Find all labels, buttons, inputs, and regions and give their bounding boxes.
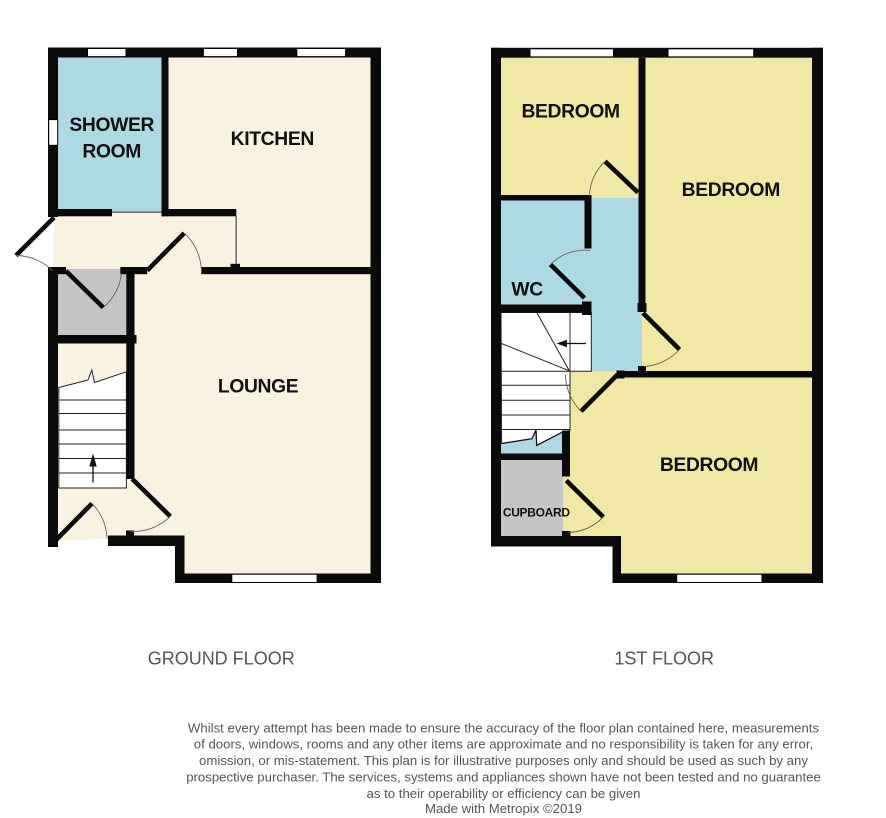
svg-text:omission, or mis-statement. Th: omission, or mis-statement. This plan is… [199, 753, 808, 768]
svg-text:SHOWER: SHOWER [69, 115, 154, 136]
svg-text:CUPBOARD: CUPBOARD [503, 505, 571, 519]
svg-text:GROUND FLOOR: GROUND FLOOR [148, 648, 295, 668]
svg-text:BEDROOM: BEDROOM [521, 102, 619, 123]
svg-text:1ST FLOOR: 1ST FLOOR [614, 648, 714, 668]
svg-text:of doors, windows, rooms and a: of doors, windows, rooms and any other i… [194, 737, 813, 752]
svg-text:LOUNGE: LOUNGE [218, 377, 299, 398]
svg-text:KITCHEN: KITCHEN [231, 129, 314, 150]
svg-text:Made with Metropix ©2019: Made with Metropix ©2019 [425, 801, 582, 816]
svg-text:as to their operability or eff: as to their operability or efficiency ca… [367, 786, 641, 801]
svg-text:BEDROOM: BEDROOM [682, 180, 780, 201]
svg-text:ROOM: ROOM [82, 142, 141, 163]
svg-text:BEDROOM: BEDROOM [660, 455, 758, 476]
svg-text:prospective purchaser. The ser: prospective purchaser. The services, sys… [186, 770, 821, 785]
svg-text:Whilst every attempt has been: Whilst every attempt has been made to en… [188, 720, 820, 735]
svg-text:WC: WC [511, 279, 543, 300]
